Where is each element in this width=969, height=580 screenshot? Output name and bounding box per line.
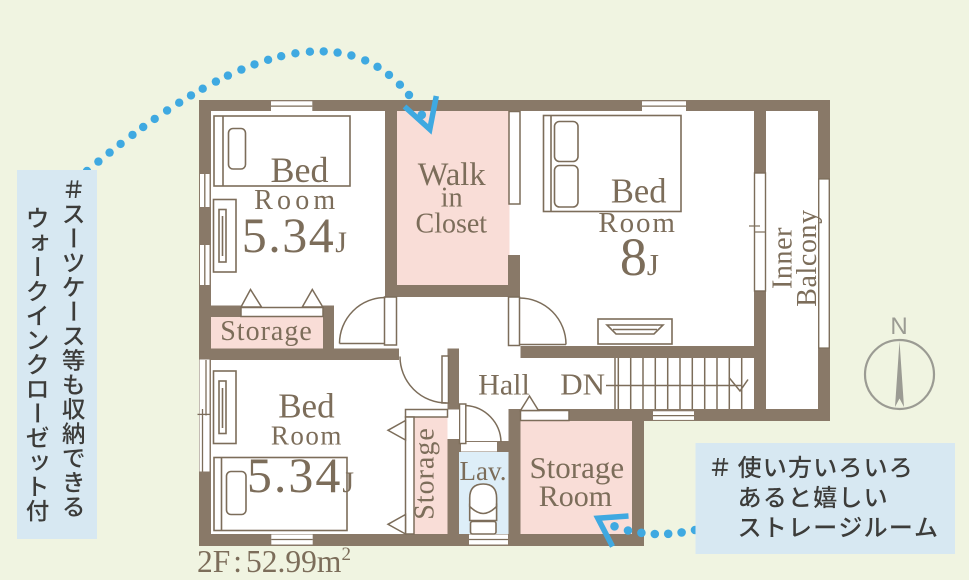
svg-text:Lav.: Lav. [460, 456, 507, 486]
svg-text:Balcony: Balcony [792, 209, 823, 307]
svg-text:Room: Room [271, 420, 343, 450]
svg-text:Room: Room [539, 480, 612, 513]
svg-text:Closet: Closet [416, 209, 488, 240]
svg-text:5.34J: 5.34J [242, 207, 349, 263]
svg-text:5.34J: 5.34J [247, 447, 356, 503]
svg-text:Bed: Bed [611, 173, 667, 211]
svg-text:Storage: Storage [220, 316, 313, 347]
svg-text:DN: DN [560, 366, 605, 401]
svg-text:Hall: Hall [478, 369, 530, 402]
svg-text:Storage: Storage [410, 427, 441, 520]
svg-text:N: N [890, 313, 907, 340]
svg-text:Bed: Bed [271, 150, 329, 190]
svg-text:2F:52.99m2: 2F:52.99m2 [197, 544, 351, 579]
